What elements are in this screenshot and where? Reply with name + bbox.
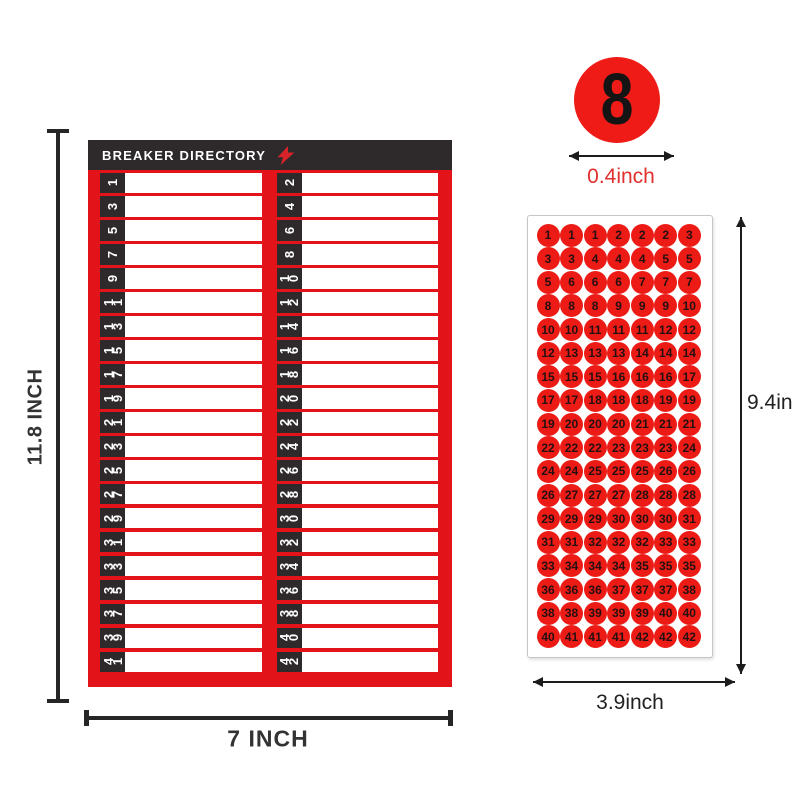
number-sticker: 22 xyxy=(560,436,583,459)
number-sticker: 15 xyxy=(560,365,583,388)
row-number-tab: 37 xyxy=(100,604,125,625)
breaker-row: 9 xyxy=(100,268,262,289)
row-label-field xyxy=(125,628,262,649)
breaker-row: 10 xyxy=(277,268,439,289)
number-sticker: 21 xyxy=(631,413,654,436)
row-number-tab: 21 xyxy=(100,412,125,433)
sheet-height-arrow xyxy=(740,217,742,674)
product-dimension-diagram: { "colors": { "panel_red": "#e31419", "h… xyxy=(0,0,800,800)
number-sticker: 37 xyxy=(631,578,654,601)
number-sticker: 16 xyxy=(607,365,630,388)
number-sticker: 31 xyxy=(537,531,560,554)
rotated-digit: 1 xyxy=(110,657,125,666)
row-number-tab: 24 xyxy=(277,436,302,457)
number-sticker: 20 xyxy=(584,413,607,436)
rotated-digit: 6 xyxy=(286,346,301,355)
dimension-end-cap xyxy=(84,710,89,726)
number-sticker: 35 xyxy=(631,554,654,577)
number-sticker: 2 xyxy=(607,224,630,247)
row-label-field xyxy=(125,244,262,265)
dimension-end-cap xyxy=(448,710,453,726)
number-sticker: 17 xyxy=(678,365,701,388)
sheet-width-label: 3.9inch xyxy=(596,691,664,715)
rotated-digit: 9 xyxy=(110,394,125,403)
row-number-tab: 41 xyxy=(100,652,125,673)
rotated-digit: 5 xyxy=(105,226,120,235)
row-number-tab: 14 xyxy=(277,316,302,337)
breaker-row: 19 xyxy=(100,388,262,409)
row-label-field xyxy=(125,340,262,361)
number-sticker: 27 xyxy=(560,484,583,507)
number-sticker: 31 xyxy=(560,531,583,554)
row-label-field xyxy=(302,652,439,673)
row-number-tab: 30 xyxy=(277,508,302,529)
row-number-tab: 33 xyxy=(100,556,125,577)
rotated-digit: 1 xyxy=(110,298,125,307)
breaker-row: 36 xyxy=(277,580,439,601)
breaker-row: 27 xyxy=(100,484,262,505)
breaker-row: 6 xyxy=(277,220,439,241)
row-number-tab: 17 xyxy=(100,364,125,385)
number-sticker: 21 xyxy=(654,413,677,436)
number-sticker: 38 xyxy=(678,578,701,601)
rotated-digit: 4 xyxy=(286,322,301,331)
row-label-field xyxy=(302,340,439,361)
panel-title: BREAKER DIRECTORY xyxy=(102,148,266,163)
breaker-row: 37 xyxy=(100,604,262,625)
breaker-row: 23 xyxy=(100,436,262,457)
breaker-row: 39 xyxy=(100,628,262,649)
row-label-field xyxy=(125,292,262,313)
number-sticker: 13 xyxy=(607,342,630,365)
number-sticker: 35 xyxy=(678,554,701,577)
row-label-field xyxy=(125,173,262,194)
row-label-field xyxy=(302,244,439,265)
row-label-field xyxy=(125,508,262,529)
sticker-sheet: 1112223334445556667778889991010101111111… xyxy=(527,215,713,658)
rotated-digit: 5 xyxy=(110,466,125,475)
row-label-field xyxy=(125,556,262,577)
row-label-field xyxy=(125,196,262,217)
number-sticker: 36 xyxy=(584,578,607,601)
number-sticker: 18 xyxy=(584,389,607,412)
number-sticker: 41 xyxy=(560,625,583,648)
number-sticker: 10 xyxy=(537,318,560,341)
sample-sticker-number: 8 xyxy=(601,64,634,136)
number-sticker: 4 xyxy=(584,247,607,270)
row-label-field xyxy=(302,268,439,289)
number-sticker: 40 xyxy=(678,602,701,625)
row-number-tab: 3 xyxy=(100,196,125,217)
sticker-grid: 1112223334445556667778889991010101111111… xyxy=(537,224,702,650)
rotated-digit: 0 xyxy=(286,394,301,403)
row-number-tab: 26 xyxy=(277,460,302,481)
row-label-field xyxy=(125,220,262,241)
panel-height-dimension-line xyxy=(56,131,60,701)
number-sticker: 42 xyxy=(631,625,654,648)
rotated-digit: 7 xyxy=(110,490,125,499)
dimension-end-cap xyxy=(47,129,69,133)
breaker-row: 32 xyxy=(277,532,439,553)
rotated-digit: 8 xyxy=(286,370,301,379)
row-label-field xyxy=(125,316,262,337)
breaker-column-right: 24681012141618202224262830323436384042 xyxy=(277,173,439,673)
number-sticker: 18 xyxy=(607,389,630,412)
number-sticker: 7 xyxy=(631,271,654,294)
rotated-digit: 7 xyxy=(110,609,125,618)
breaker-row: 15 xyxy=(100,340,262,361)
number-sticker: 26 xyxy=(654,460,677,483)
number-sticker: 11 xyxy=(584,318,607,341)
breaker-row: 3 xyxy=(100,196,262,217)
breaker-row: 30 xyxy=(277,508,439,529)
number-sticker: 11 xyxy=(631,318,654,341)
number-sticker: 36 xyxy=(560,578,583,601)
number-sticker: 12 xyxy=(537,342,560,365)
number-sticker: 33 xyxy=(654,531,677,554)
rotated-digit: 7 xyxy=(105,250,120,259)
row-number-tab: 6 xyxy=(277,220,302,241)
sheet-height-label: 9.4in xyxy=(747,391,793,415)
row-label-field xyxy=(302,436,439,457)
dimension-end-cap xyxy=(47,699,69,703)
number-sticker: 15 xyxy=(584,365,607,388)
number-sticker: 2 xyxy=(654,224,677,247)
number-sticker: 42 xyxy=(654,625,677,648)
number-sticker: 15 xyxy=(537,365,560,388)
row-number-tab: 9 xyxy=(100,268,125,289)
number-sticker: 37 xyxy=(607,578,630,601)
number-sticker: 1 xyxy=(584,224,607,247)
breaker-row: 11 xyxy=(100,292,262,313)
row-label-field xyxy=(302,220,439,241)
number-sticker: 28 xyxy=(678,484,701,507)
sheet-width-arrow xyxy=(533,681,735,683)
number-sticker: 32 xyxy=(584,531,607,554)
rotated-digit: 6 xyxy=(286,586,301,595)
number-sticker: 24 xyxy=(560,460,583,483)
number-sticker: 8 xyxy=(537,294,560,317)
number-sticker: 9 xyxy=(607,294,630,317)
rotated-digit: 2 xyxy=(286,418,301,427)
number-sticker: 34 xyxy=(560,554,583,577)
row-number-tab: 25 xyxy=(100,460,125,481)
row-label-field xyxy=(302,532,439,553)
number-sticker: 30 xyxy=(631,507,654,530)
row-label-field xyxy=(302,388,439,409)
number-sticker: 23 xyxy=(607,436,630,459)
row-number-tab: 31 xyxy=(100,532,125,553)
number-sticker: 3 xyxy=(560,247,583,270)
breaker-row: 2 xyxy=(277,173,439,194)
number-sticker: 11 xyxy=(607,318,630,341)
number-sticker: 20 xyxy=(607,413,630,436)
breaker-row: 28 xyxy=(277,484,439,505)
number-sticker: 13 xyxy=(584,342,607,365)
number-sticker: 13 xyxy=(560,342,583,365)
number-sticker: 8 xyxy=(560,294,583,317)
breaker-row: 34 xyxy=(277,556,439,577)
number-sticker: 27 xyxy=(584,484,607,507)
rotated-digit: 2 xyxy=(286,657,301,666)
number-sticker: 18 xyxy=(631,389,654,412)
row-label-field xyxy=(125,388,262,409)
number-sticker: 39 xyxy=(607,602,630,625)
row-number-tab: 4 xyxy=(277,196,302,217)
number-sticker: 12 xyxy=(678,318,701,341)
row-label-field xyxy=(302,316,439,337)
row-number-tab: 42 xyxy=(277,652,302,673)
number-sticker: 26 xyxy=(678,460,701,483)
breaker-row: 26 xyxy=(277,460,439,481)
number-sticker: 7 xyxy=(654,271,677,294)
row-number-tab: 20 xyxy=(277,388,302,409)
number-sticker: 7 xyxy=(678,271,701,294)
number-sticker: 29 xyxy=(560,507,583,530)
breaker-row: 4 xyxy=(277,196,439,217)
lightning-bolt-icon xyxy=(275,145,296,166)
number-sticker: 38 xyxy=(560,602,583,625)
rotated-digit: 3 xyxy=(110,562,125,571)
row-number-tab: 5 xyxy=(100,220,125,241)
breaker-row: 8 xyxy=(277,244,439,265)
rotated-digit: 0 xyxy=(286,633,301,642)
number-sticker: 19 xyxy=(654,389,677,412)
number-sticker: 29 xyxy=(537,507,560,530)
row-label-field xyxy=(125,412,262,433)
number-sticker: 1 xyxy=(560,224,583,247)
row-number-tab: 13 xyxy=(100,316,125,337)
number-sticker: 6 xyxy=(584,271,607,294)
breaker-row: 42 xyxy=(277,652,439,673)
number-sticker: 41 xyxy=(607,625,630,648)
breaker-row: 13 xyxy=(100,316,262,337)
rotated-digit: 3 xyxy=(110,322,125,331)
number-sticker: 19 xyxy=(678,389,701,412)
row-label-field xyxy=(302,556,439,577)
rotated-digit: 5 xyxy=(110,346,125,355)
row-label-field xyxy=(302,604,439,625)
row-label-field xyxy=(125,532,262,553)
number-sticker: 5 xyxy=(678,247,701,270)
number-sticker: 39 xyxy=(631,602,654,625)
number-sticker: 6 xyxy=(560,271,583,294)
rotated-digit: 8 xyxy=(282,250,297,259)
row-number-tab: 1 xyxy=(100,173,125,194)
row-label-field xyxy=(125,484,262,505)
number-sticker: 12 xyxy=(654,318,677,341)
number-sticker: 5 xyxy=(654,247,677,270)
row-label-field xyxy=(302,460,439,481)
breaker-row: 20 xyxy=(277,388,439,409)
rotated-digit: 9 xyxy=(110,633,125,642)
rotated-digit: 1 xyxy=(105,178,120,187)
breaker-row: 22 xyxy=(277,412,439,433)
row-number-tab: 36 xyxy=(277,580,302,601)
panel-height-label: 11.8 INCH xyxy=(25,369,48,466)
breaker-directory-panel: BREAKER DIRECTORY 1357911131517192123252… xyxy=(88,140,452,687)
row-number-tab: 8 xyxy=(277,244,302,265)
number-sticker: 16 xyxy=(631,365,654,388)
row-label-field xyxy=(302,628,439,649)
breaker-row: 29 xyxy=(100,508,262,529)
row-label-field xyxy=(302,364,439,385)
number-sticker: 40 xyxy=(654,602,677,625)
number-sticker: 20 xyxy=(560,413,583,436)
sample-sticker-circle: 8 xyxy=(574,57,660,143)
number-sticker: 6 xyxy=(607,271,630,294)
rotated-digit: 9 xyxy=(110,514,125,523)
number-sticker: 34 xyxy=(584,554,607,577)
rotated-digit: 0 xyxy=(286,274,301,283)
number-sticker: 3 xyxy=(678,224,701,247)
row-number-tab: 7 xyxy=(100,244,125,265)
number-sticker: 28 xyxy=(654,484,677,507)
breaker-row: 21 xyxy=(100,412,262,433)
breaker-row: 14 xyxy=(277,316,439,337)
panel-body: 1357911131517192123252729313335373941 24… xyxy=(88,170,452,672)
number-sticker: 26 xyxy=(537,484,560,507)
row-label-field xyxy=(125,652,262,673)
rotated-digit: 0 xyxy=(286,514,301,523)
breaker-row: 17 xyxy=(100,364,262,385)
row-number-tab: 32 xyxy=(277,532,302,553)
rotated-digit: 2 xyxy=(286,538,301,547)
row-label-field xyxy=(302,173,439,194)
sticker-diameter-arrow xyxy=(569,155,674,157)
row-number-tab: 22 xyxy=(277,412,302,433)
panel-width-label: 7 INCH xyxy=(227,726,308,753)
row-number-tab: 40 xyxy=(277,628,302,649)
breaker-row: 31 xyxy=(100,532,262,553)
row-label-field xyxy=(302,196,439,217)
number-sticker: 36 xyxy=(537,578,560,601)
rotated-digit: 4 xyxy=(286,442,301,451)
breaker-row: 12 xyxy=(277,292,439,313)
row-label-field xyxy=(302,580,439,601)
number-sticker: 33 xyxy=(678,531,701,554)
row-label-field xyxy=(125,460,262,481)
number-sticker: 10 xyxy=(560,318,583,341)
number-sticker: 1 xyxy=(537,224,560,247)
row-number-tab: 16 xyxy=(277,340,302,361)
row-label-field xyxy=(125,364,262,385)
number-sticker: 29 xyxy=(584,507,607,530)
number-sticker: 8 xyxy=(584,294,607,317)
number-sticker: 42 xyxy=(678,625,701,648)
breaker-column-left: 1357911131517192123252729313335373941 xyxy=(100,173,262,673)
number-sticker: 24 xyxy=(537,460,560,483)
number-sticker: 37 xyxy=(654,578,677,601)
rotated-digit: 5 xyxy=(110,586,125,595)
rotated-digit: 7 xyxy=(110,370,125,379)
breaker-row: 18 xyxy=(277,364,439,385)
rotated-digit: 6 xyxy=(286,466,301,475)
row-label-field xyxy=(125,580,262,601)
row-number-tab: 18 xyxy=(277,364,302,385)
row-number-tab: 19 xyxy=(100,388,125,409)
number-sticker: 35 xyxy=(654,554,677,577)
number-sticker: 27 xyxy=(607,484,630,507)
number-sticker: 25 xyxy=(607,460,630,483)
number-sticker: 31 xyxy=(678,507,701,530)
number-sticker: 17 xyxy=(560,389,583,412)
number-sticker: 5 xyxy=(537,271,560,294)
number-sticker: 4 xyxy=(607,247,630,270)
breaker-row: 35 xyxy=(100,580,262,601)
number-sticker: 23 xyxy=(631,436,654,459)
number-sticker: 25 xyxy=(631,460,654,483)
row-number-tab: 29 xyxy=(100,508,125,529)
row-number-tab: 23 xyxy=(100,436,125,457)
number-sticker: 22 xyxy=(537,436,560,459)
row-label-field xyxy=(302,412,439,433)
panel-width-dimension-line xyxy=(85,716,452,720)
row-number-tab: 34 xyxy=(277,556,302,577)
number-sticker: 2 xyxy=(631,224,654,247)
row-number-tab: 15 xyxy=(100,340,125,361)
rotated-digit: 8 xyxy=(286,609,301,618)
number-sticker: 9 xyxy=(654,294,677,317)
breaker-row: 41 xyxy=(100,652,262,673)
row-label-field xyxy=(302,508,439,529)
number-sticker: 34 xyxy=(607,554,630,577)
rotated-digit: 2 xyxy=(286,298,301,307)
number-sticker: 24 xyxy=(678,436,701,459)
breaker-row: 40 xyxy=(277,628,439,649)
number-sticker: 33 xyxy=(537,554,560,577)
number-sticker: 39 xyxy=(584,602,607,625)
number-sticker: 30 xyxy=(607,507,630,530)
rotated-digit: 1 xyxy=(110,418,125,427)
number-sticker: 23 xyxy=(654,436,677,459)
row-number-tab: 10 xyxy=(277,268,302,289)
number-sticker: 14 xyxy=(631,342,654,365)
number-sticker: 16 xyxy=(654,365,677,388)
row-label-field xyxy=(302,484,439,505)
row-number-tab: 11 xyxy=(100,292,125,313)
panel-header: BREAKER DIRECTORY xyxy=(88,140,452,170)
breaker-row: 24 xyxy=(277,436,439,457)
number-sticker: 10 xyxy=(678,294,701,317)
rotated-digit: 6 xyxy=(282,226,297,235)
number-sticker: 9 xyxy=(631,294,654,317)
number-sticker: 28 xyxy=(631,484,654,507)
number-sticker: 17 xyxy=(537,389,560,412)
rotated-digit: 3 xyxy=(105,202,120,211)
breaker-row: 38 xyxy=(277,604,439,625)
number-sticker: 38 xyxy=(537,602,560,625)
number-sticker: 21 xyxy=(678,413,701,436)
number-sticker: 41 xyxy=(584,625,607,648)
row-number-tab: 38 xyxy=(277,604,302,625)
breaker-row: 33 xyxy=(100,556,262,577)
number-sticker: 30 xyxy=(654,507,677,530)
row-number-tab: 39 xyxy=(100,628,125,649)
row-label-field xyxy=(125,604,262,625)
sticker-diameter-label: 0.4inch xyxy=(587,165,655,189)
number-sticker: 14 xyxy=(654,342,677,365)
rotated-digit: 4 xyxy=(282,202,297,211)
rotated-digit: 4 xyxy=(286,562,301,571)
rotated-digit: 1 xyxy=(110,538,125,547)
row-label-field xyxy=(125,268,262,289)
rotated-digit: 9 xyxy=(105,274,120,283)
number-sticker: 4 xyxy=(631,247,654,270)
rotated-digit: 8 xyxy=(286,490,301,499)
row-number-tab: 28 xyxy=(277,484,302,505)
number-sticker: 32 xyxy=(631,531,654,554)
